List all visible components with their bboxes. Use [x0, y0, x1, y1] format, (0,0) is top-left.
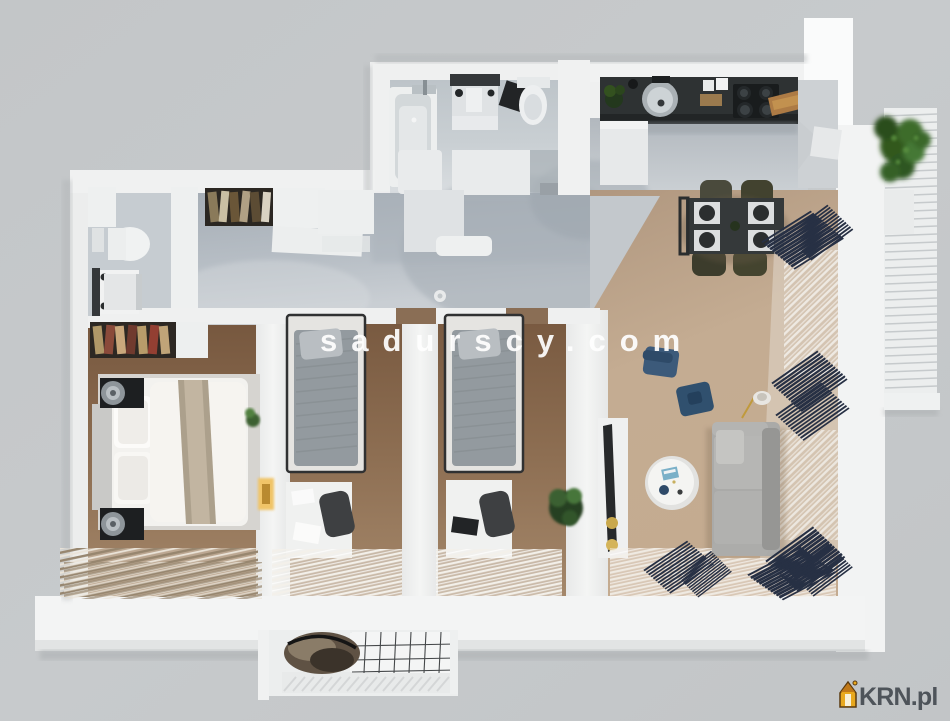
svg-text:sadurscy.com: sadurscy.com — [320, 323, 694, 358]
svg-text:KRN.pl: KRN.pl — [859, 683, 938, 711]
